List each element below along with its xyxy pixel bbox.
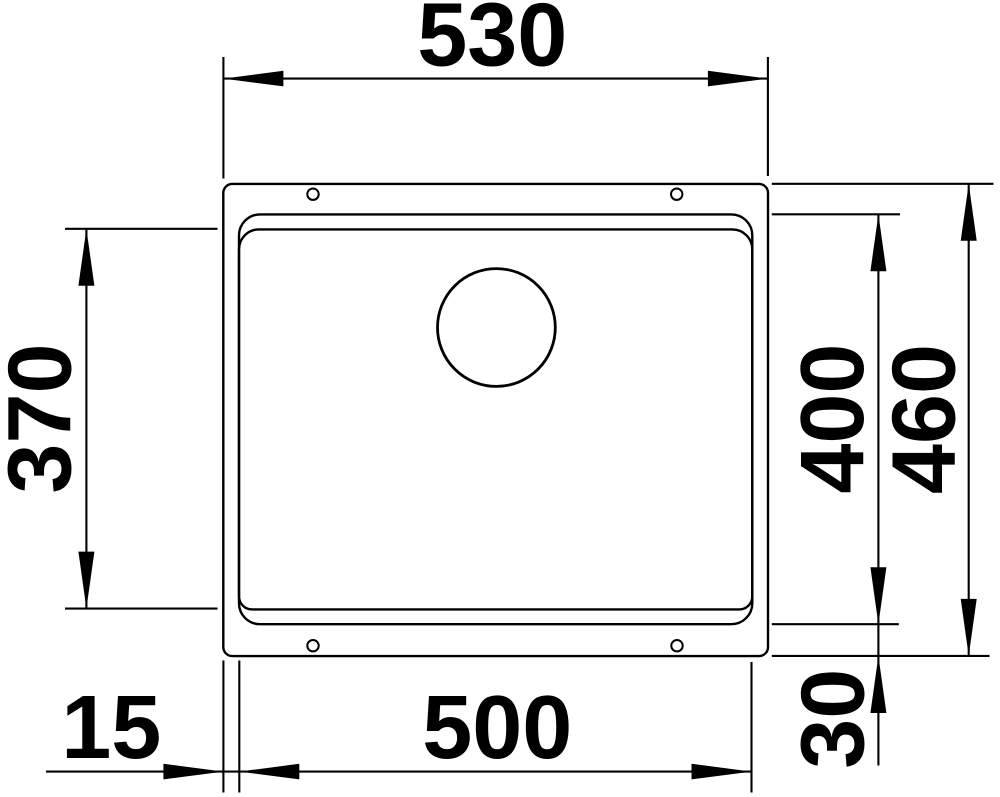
svg-text:30: 30 (784, 669, 884, 769)
svg-text:460: 460 (875, 344, 975, 494)
svg-text:370: 370 (0, 343, 90, 493)
svg-text:15: 15 (61, 678, 161, 778)
svg-text:400: 400 (783, 344, 883, 494)
svg-text:500: 500 (422, 678, 572, 778)
svg-text:530: 530 (417, 0, 567, 85)
